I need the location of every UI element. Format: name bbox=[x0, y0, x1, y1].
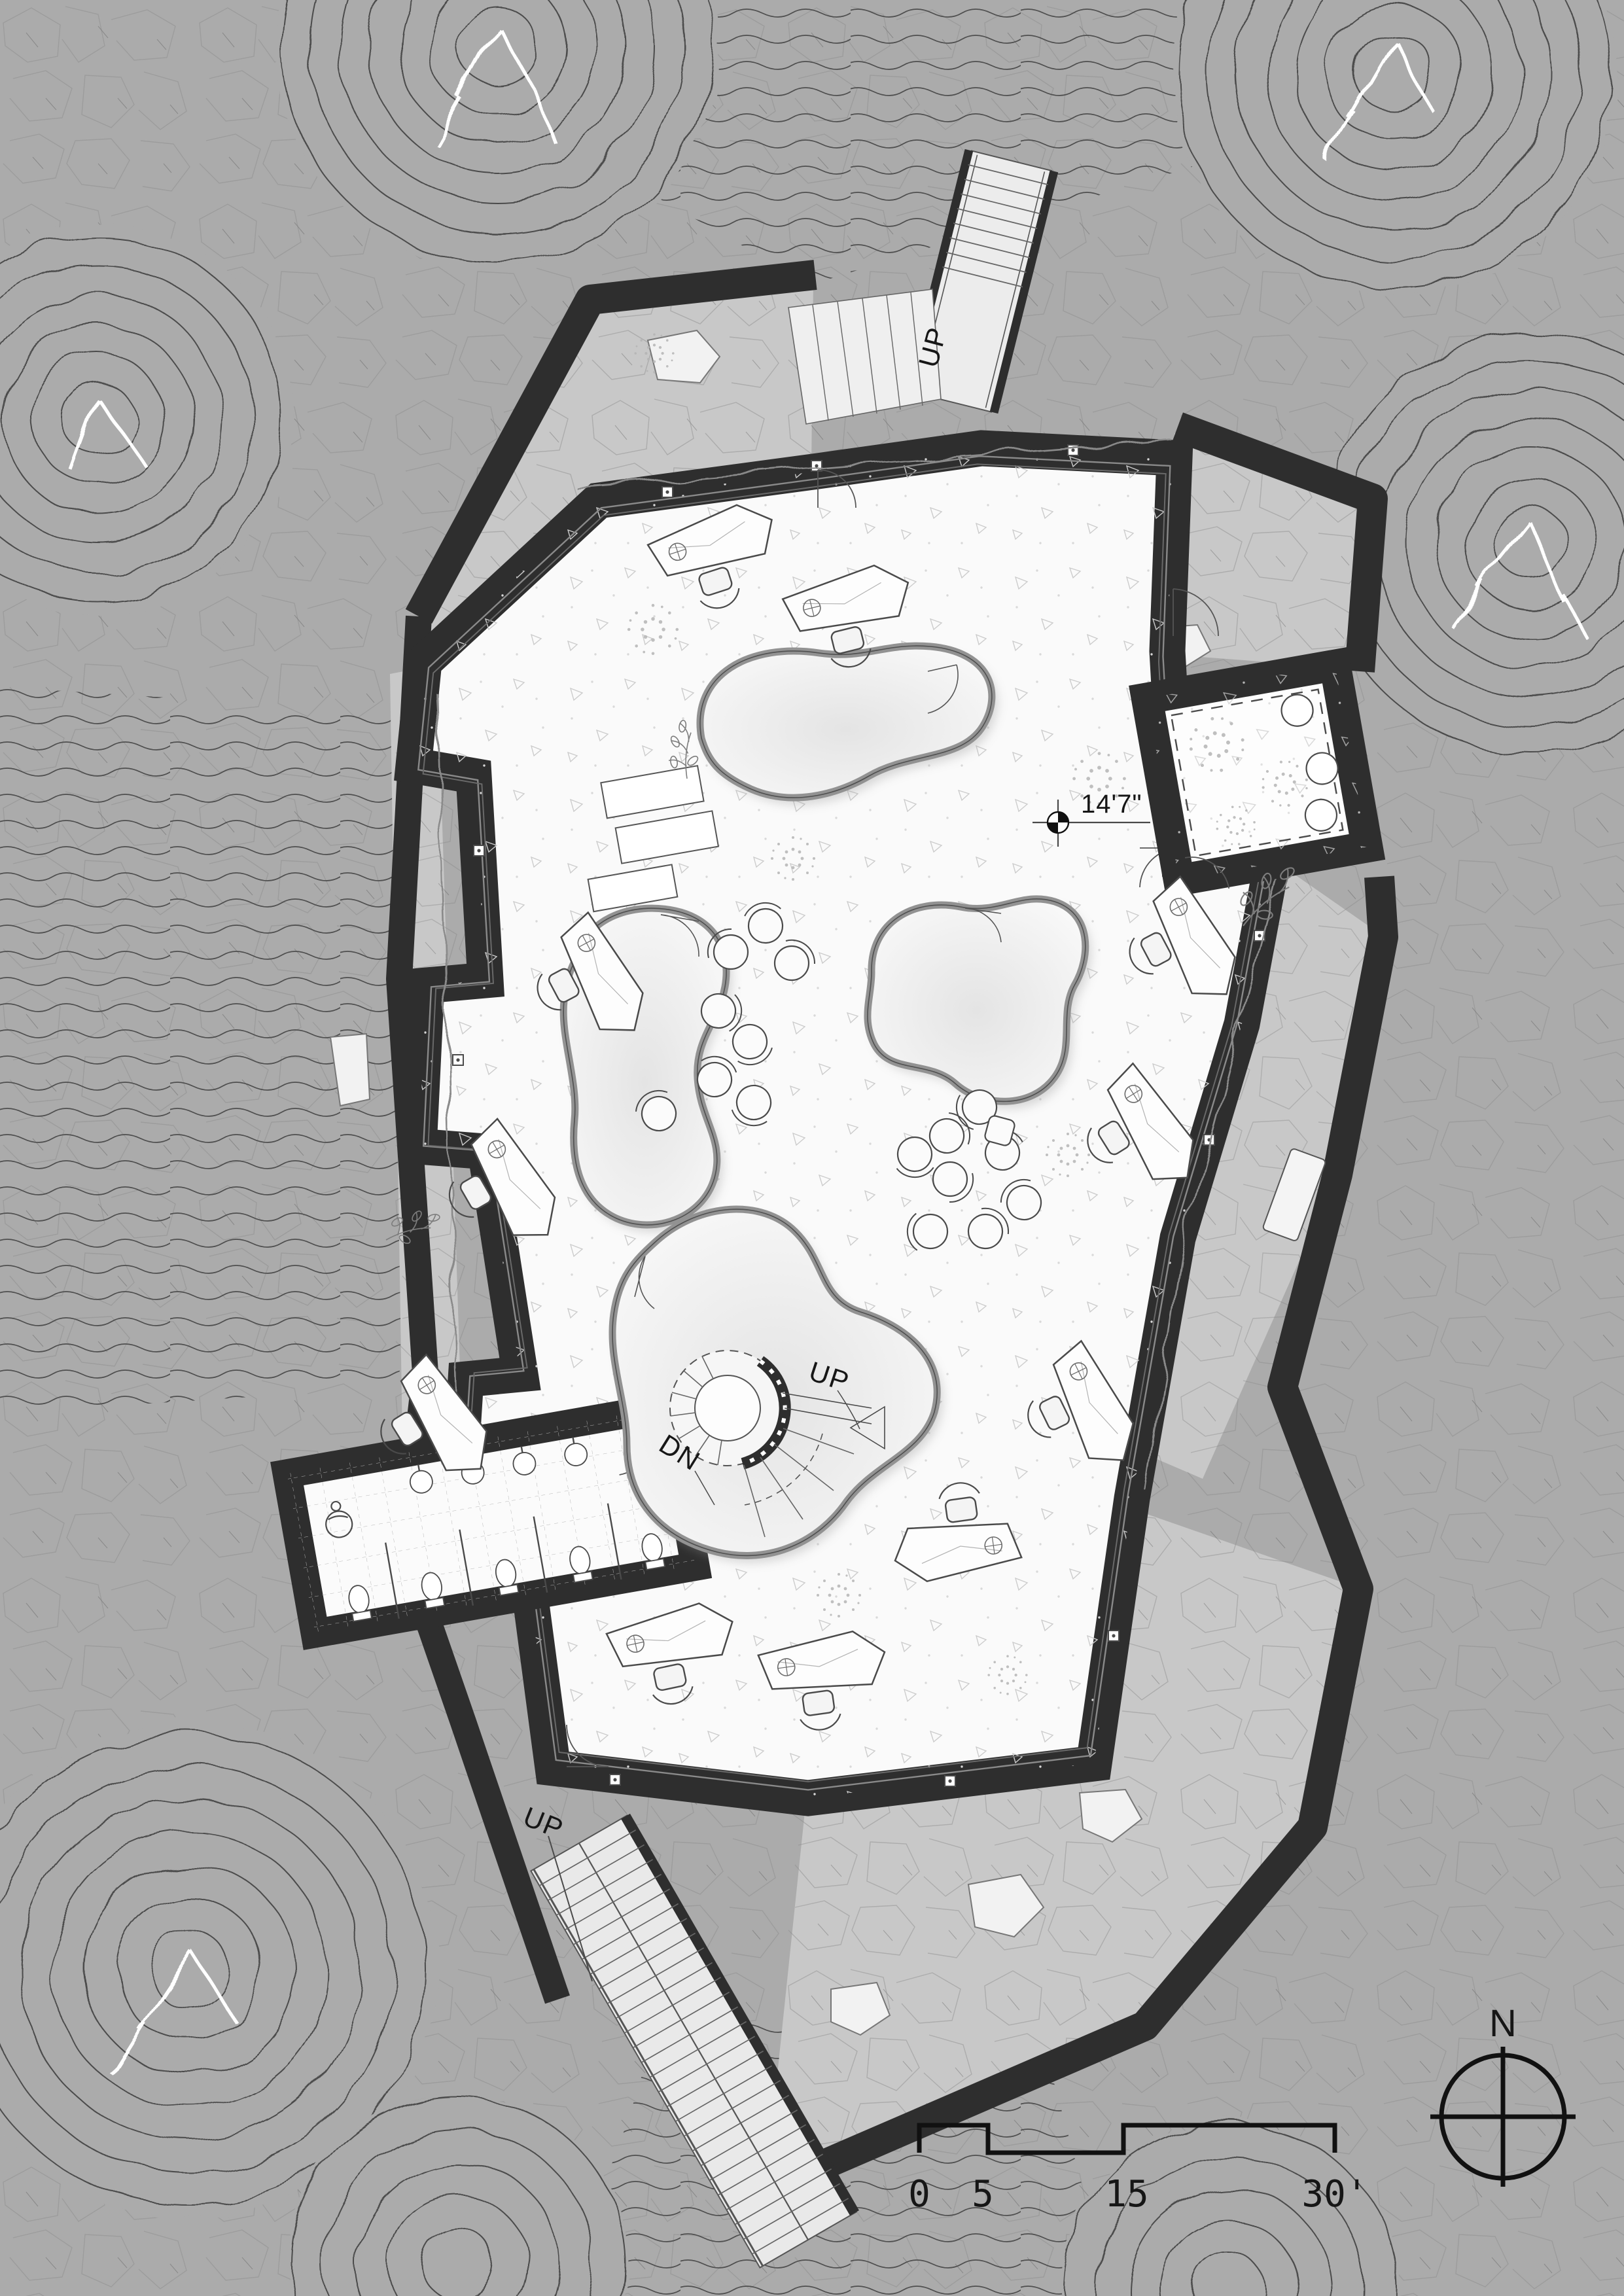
scale-tick-30: 30' bbox=[1301, 2173, 1368, 2216]
north-label: N bbox=[1489, 2002, 1517, 2045]
floor-plan-canvas: UP bbox=[0, 0, 1624, 2296]
level-marker-label: 14'7" bbox=[1081, 790, 1142, 819]
courtyard bbox=[1147, 665, 1370, 897]
scale-tick-5: 5 bbox=[972, 2173, 994, 2216]
scale-tick-0: 0 bbox=[908, 2173, 930, 2216]
scale-tick-15: 15 bbox=[1104, 2173, 1148, 2216]
pouf bbox=[984, 1115, 1016, 1147]
